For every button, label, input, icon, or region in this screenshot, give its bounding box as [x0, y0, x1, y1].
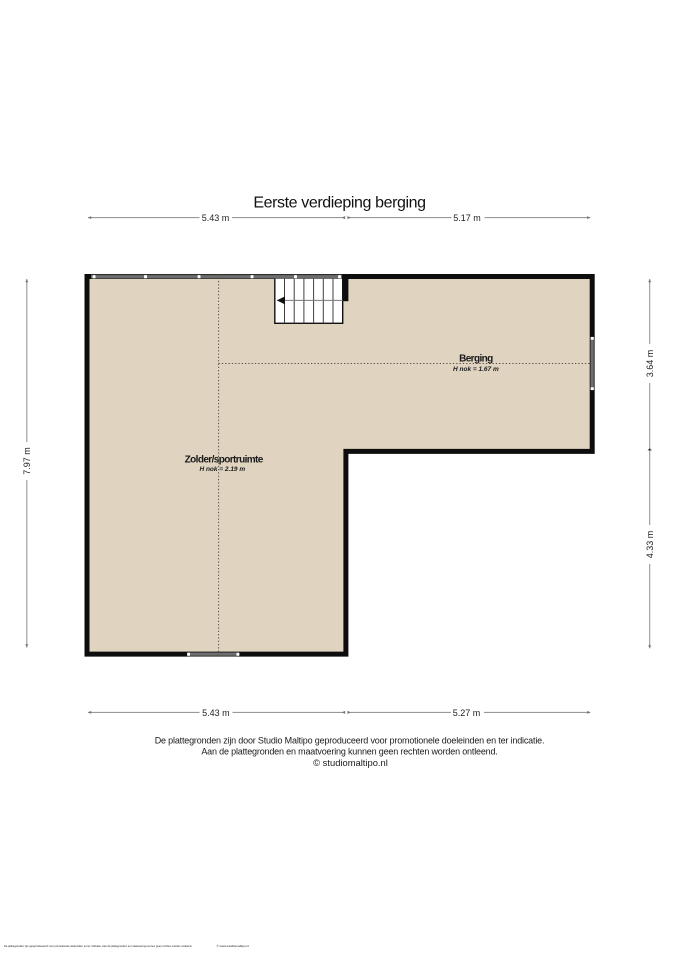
- svg-text:3.64 m: 3.64 m: [645, 350, 655, 378]
- svg-text:5.17 m: 5.17 m: [453, 213, 481, 223]
- svg-text:© www.studiomaltipo.nl: © www.studiomaltipo.nl: [217, 944, 250, 948]
- svg-text:Berging: Berging: [459, 354, 493, 365]
- svg-text:Aan de plattegronden en maatvo: Aan de plattegronden en maatvoering kunn…: [201, 747, 497, 757]
- svg-text:5.43 m: 5.43 m: [202, 213, 230, 223]
- svg-text:© studiomaltipo.nl: © studiomaltipo.nl: [313, 757, 388, 768]
- svg-text:Eerste verdieping berging: Eerste verdieping berging: [253, 195, 425, 212]
- svg-text:De plattegronden zijn door Stu: De plattegronden zijn door Studio Maltip…: [155, 736, 545, 746]
- svg-text:5.27 m: 5.27 m: [453, 708, 481, 718]
- svg-text:7.97 m: 7.97 m: [22, 447, 32, 475]
- svg-text:H nok = 1.67 m: H nok = 1.67 m: [453, 366, 499, 373]
- svg-text:4.33 m: 4.33 m: [645, 531, 655, 559]
- svg-text:Zolder/sportruimte: Zolder/sportruimte: [185, 454, 264, 465]
- svg-text:De plattegronden zijn gereprod: De plattegronden zijn gereproduceerd voo…: [4, 944, 192, 948]
- svg-text:H nok = 2.19 m: H nok = 2.19 m: [199, 466, 245, 473]
- svg-text:5.43 m: 5.43 m: [202, 708, 230, 718]
